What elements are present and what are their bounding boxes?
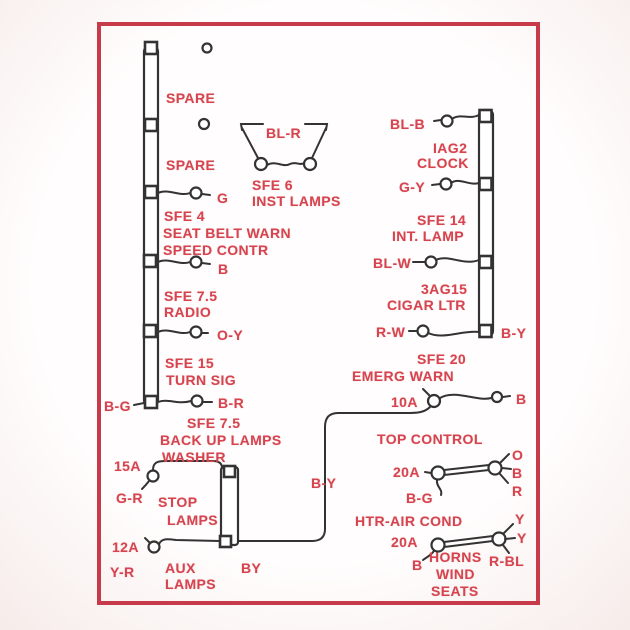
circuit-top-control: TOP CONTROL: [377, 432, 483, 446]
wire-color-bg-1: B-G: [104, 399, 131, 413]
fuse-box-diagram: SPARESPAREGSFE 4SEAT BELT WARNSPEED CONT…: [0, 0, 630, 630]
fuse-sfe75-radio-label: SFE 7.5: [164, 289, 217, 303]
diagram-linework: [0, 0, 630, 630]
wire-color-r: R: [512, 484, 523, 498]
circuit-radio: RADIO: [164, 305, 211, 319]
amp-20a-1: 20A: [393, 465, 420, 479]
circuit-back-up-lamps: BACK UP LAMPS: [160, 433, 282, 447]
fuse-sfe15-label: SFE 15: [165, 356, 214, 370]
wire-color-g: G: [217, 191, 228, 205]
circuit-aux-lamps: LAMPS: [165, 577, 216, 591]
spare-1-label: SPARE: [166, 91, 215, 105]
wire-color-gy: G-Y: [399, 180, 425, 194]
circuit-seats: SEATS: [431, 584, 479, 598]
wire-color-oy: O-Y: [217, 328, 243, 342]
circuit-wind: WIND: [436, 567, 475, 581]
circuit-turn-sig: TURN SIG: [166, 373, 236, 387]
amp-12a: 12A: [112, 540, 139, 554]
circuit-int-lamp: INT. LAMP: [392, 229, 464, 243]
circuit-stop: STOP: [158, 495, 197, 509]
emerg-warn-fuse: [423, 389, 510, 407]
amp-15a: 15A: [114, 459, 141, 473]
wire-color-yr: Y-R: [110, 565, 135, 579]
wire-color-b-3: B: [512, 466, 523, 480]
left-fuse-strip: [144, 42, 158, 408]
wire-color-b-1: B: [218, 262, 229, 276]
circuit-speed-contr: SPEED CONTR: [163, 243, 269, 257]
wire-color-rw: R-W: [376, 325, 405, 339]
wire-color-bg-2: B-G: [406, 491, 433, 505]
circuit-stop-lamps: LAMPS: [167, 513, 218, 527]
wire-color-by-mid: B-Y: [311, 476, 336, 490]
wire-color-y-2: Y: [517, 531, 527, 545]
fuse-sfe20-label: SFE 20: [417, 352, 466, 366]
circuit-washer: WASHER: [162, 450, 226, 464]
fuse-iag2-label: IAG2: [433, 141, 467, 155]
fuse-sfe6-label: SFE 6: [252, 178, 293, 192]
circuit-seat-belt-warn: SEAT BELT WARN: [163, 226, 291, 240]
spare-terminal-holes: [199, 44, 212, 130]
wire-color-by-small: BY: [241, 561, 261, 575]
right-fuse-strip: [479, 110, 493, 337]
wire-color-blr: BL-R: [266, 126, 301, 140]
wire-color-blb: BL-B: [390, 117, 425, 131]
fuse-sfe4-label: SFE 4: [164, 209, 205, 223]
fuse-3ag15-label: 3AG15: [421, 282, 467, 296]
wire-color-o: O: [512, 448, 523, 462]
spare-2-label: SPARE: [166, 158, 215, 172]
wire-color-gr: G-R: [116, 491, 143, 505]
top-control-fuse: [425, 454, 511, 495]
circuit-cigar-ltr: CIGAR LTR: [387, 298, 466, 312]
fuse-sfe14-label: SFE 14: [417, 213, 466, 227]
wire-color-b-2: B: [516, 392, 527, 406]
wire-color-b-4: B: [412, 558, 423, 572]
circuit-htr-air-cond: HTR-AIR COND: [355, 514, 462, 528]
circuit-clock: CLOCK: [417, 156, 469, 170]
wire-color-rbl: R-BL: [489, 554, 524, 568]
wire-color-blw: BL-W: [373, 256, 411, 270]
circuit-horns: HORNS: [429, 550, 482, 564]
stop-lamps-breaker: [220, 466, 238, 547]
amp-20a-2: 20A: [391, 535, 418, 549]
circuit-emerg-warn: EMERG WARN: [352, 369, 454, 383]
circuit-aux: AUX: [165, 561, 196, 575]
wire-color-y-1: Y: [515, 512, 525, 526]
circuit-inst-lamps: INST LAMPS: [252, 194, 341, 208]
wire-color-by-right: B-Y: [501, 326, 526, 340]
amp-10a: 10A: [391, 395, 418, 409]
fuse-sfe75-backup-label: SFE 7.5: [187, 416, 240, 430]
wire-color-br: B-R: [218, 396, 244, 410]
